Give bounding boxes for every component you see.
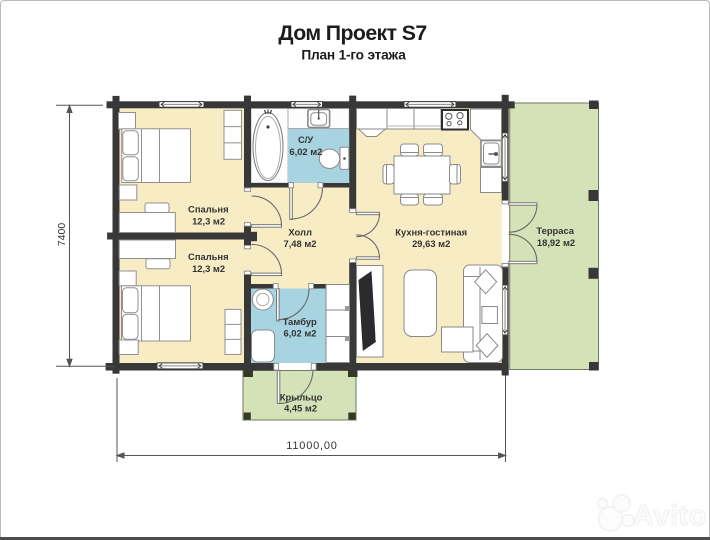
svg-text:План 1-го этажа: План 1-го этажа [301,47,406,62]
svg-text:11000,00: 11000,00 [286,440,337,452]
svg-text:7400: 7400 [56,223,68,247]
svg-text:Кухня-гостиная: Кухня-гостиная [395,226,467,237]
svg-text:Avito: Avito [633,500,707,532]
svg-text:Спальня: Спальня [188,204,229,215]
svg-text:Холл: Холл [288,226,312,237]
svg-text:4,45 м2: 4,45 м2 [284,402,317,413]
svg-text:12,3 м2: 12,3 м2 [192,215,225,226]
svg-text:12,3 м2: 12,3 м2 [192,263,225,274]
svg-text:С/У: С/У [298,134,313,145]
svg-text:29,63 м2: 29,63 м2 [412,238,450,249]
svg-text:6,02 м2: 6,02 м2 [283,328,316,339]
svg-text:6,02 м2: 6,02 м2 [289,146,322,157]
svg-text:Терраса: Терраса [536,225,574,236]
svg-text:7,48 м2: 7,48 м2 [283,238,316,249]
svg-text:18,92 м2: 18,92 м2 [537,237,575,248]
svg-text:Крыльцо: Крыльцо [280,392,323,403]
svg-text:Дом Проект S7: Дом Проект S7 [278,21,426,45]
svg-text:Спальня: Спальня [188,251,229,262]
svg-text:Тамбур: Тамбур [283,316,317,327]
